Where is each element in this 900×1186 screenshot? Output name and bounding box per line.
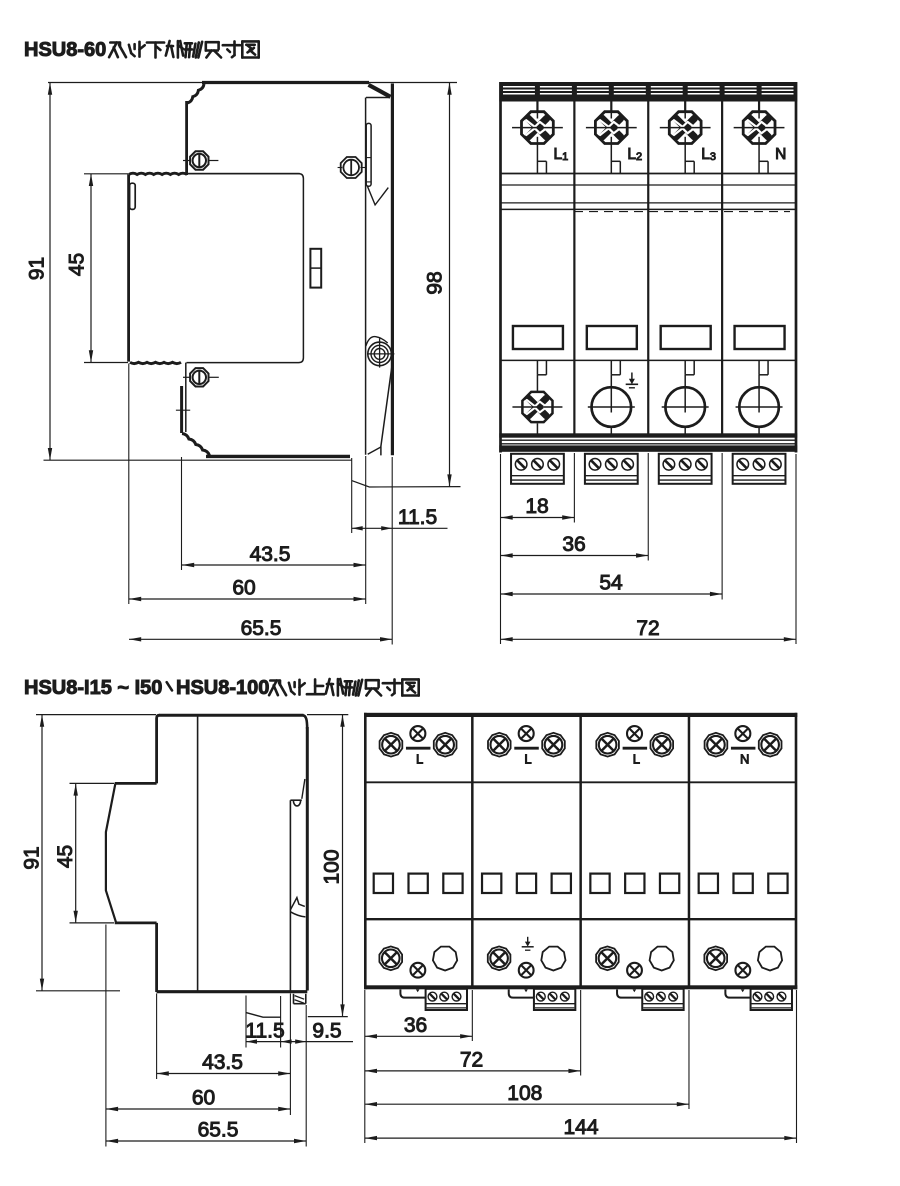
svg-text:43.5: 43.5 [202,1051,243,1074]
svg-text:HSU8-60: HSU8-60 [24,39,106,61]
svg-text:L1: L1 [553,146,568,163]
svg-text:11.5: 11.5 [245,1020,284,1043]
svg-text:108: 108 [507,1082,542,1105]
svg-text:60: 60 [192,1087,215,1110]
svg-text:11.5: 11.5 [398,506,437,529]
svg-text:60: 60 [232,577,255,600]
svg-text:45: 45 [66,253,89,276]
svg-text:36: 36 [562,533,585,556]
svg-text:36: 36 [404,1014,427,1037]
svg-text:72: 72 [460,1049,483,1072]
svg-text:HSU8-I15 ~ I50: HSU8-I15 ~ I50 [24,677,162,699]
svg-text:91: 91 [21,846,44,869]
svg-text:65.5: 65.5 [241,617,282,640]
svg-text:18: 18 [525,495,548,518]
svg-text:N: N [775,146,786,163]
svg-text:72: 72 [636,617,659,640]
svg-text:L: L [416,752,423,767]
svg-text:45: 45 [54,845,77,868]
svg-text:65.5: 65.5 [198,1119,239,1142]
svg-text:91: 91 [26,257,49,280]
svg-text:L2: L2 [627,146,642,163]
svg-text:N: N [740,752,749,767]
svg-text:HSU8-100: HSU8-100 [176,677,269,699]
svg-text:43.5: 43.5 [250,543,291,566]
svg-text:54: 54 [599,572,623,595]
svg-text:L3: L3 [701,146,716,163]
svg-text:144: 144 [563,1116,598,1139]
svg-text:98: 98 [424,271,447,294]
svg-text:L: L [524,752,531,767]
svg-text:L: L [633,752,640,767]
svg-text:100: 100 [321,849,344,884]
svg-text:9.5: 9.5 [312,1020,341,1043]
